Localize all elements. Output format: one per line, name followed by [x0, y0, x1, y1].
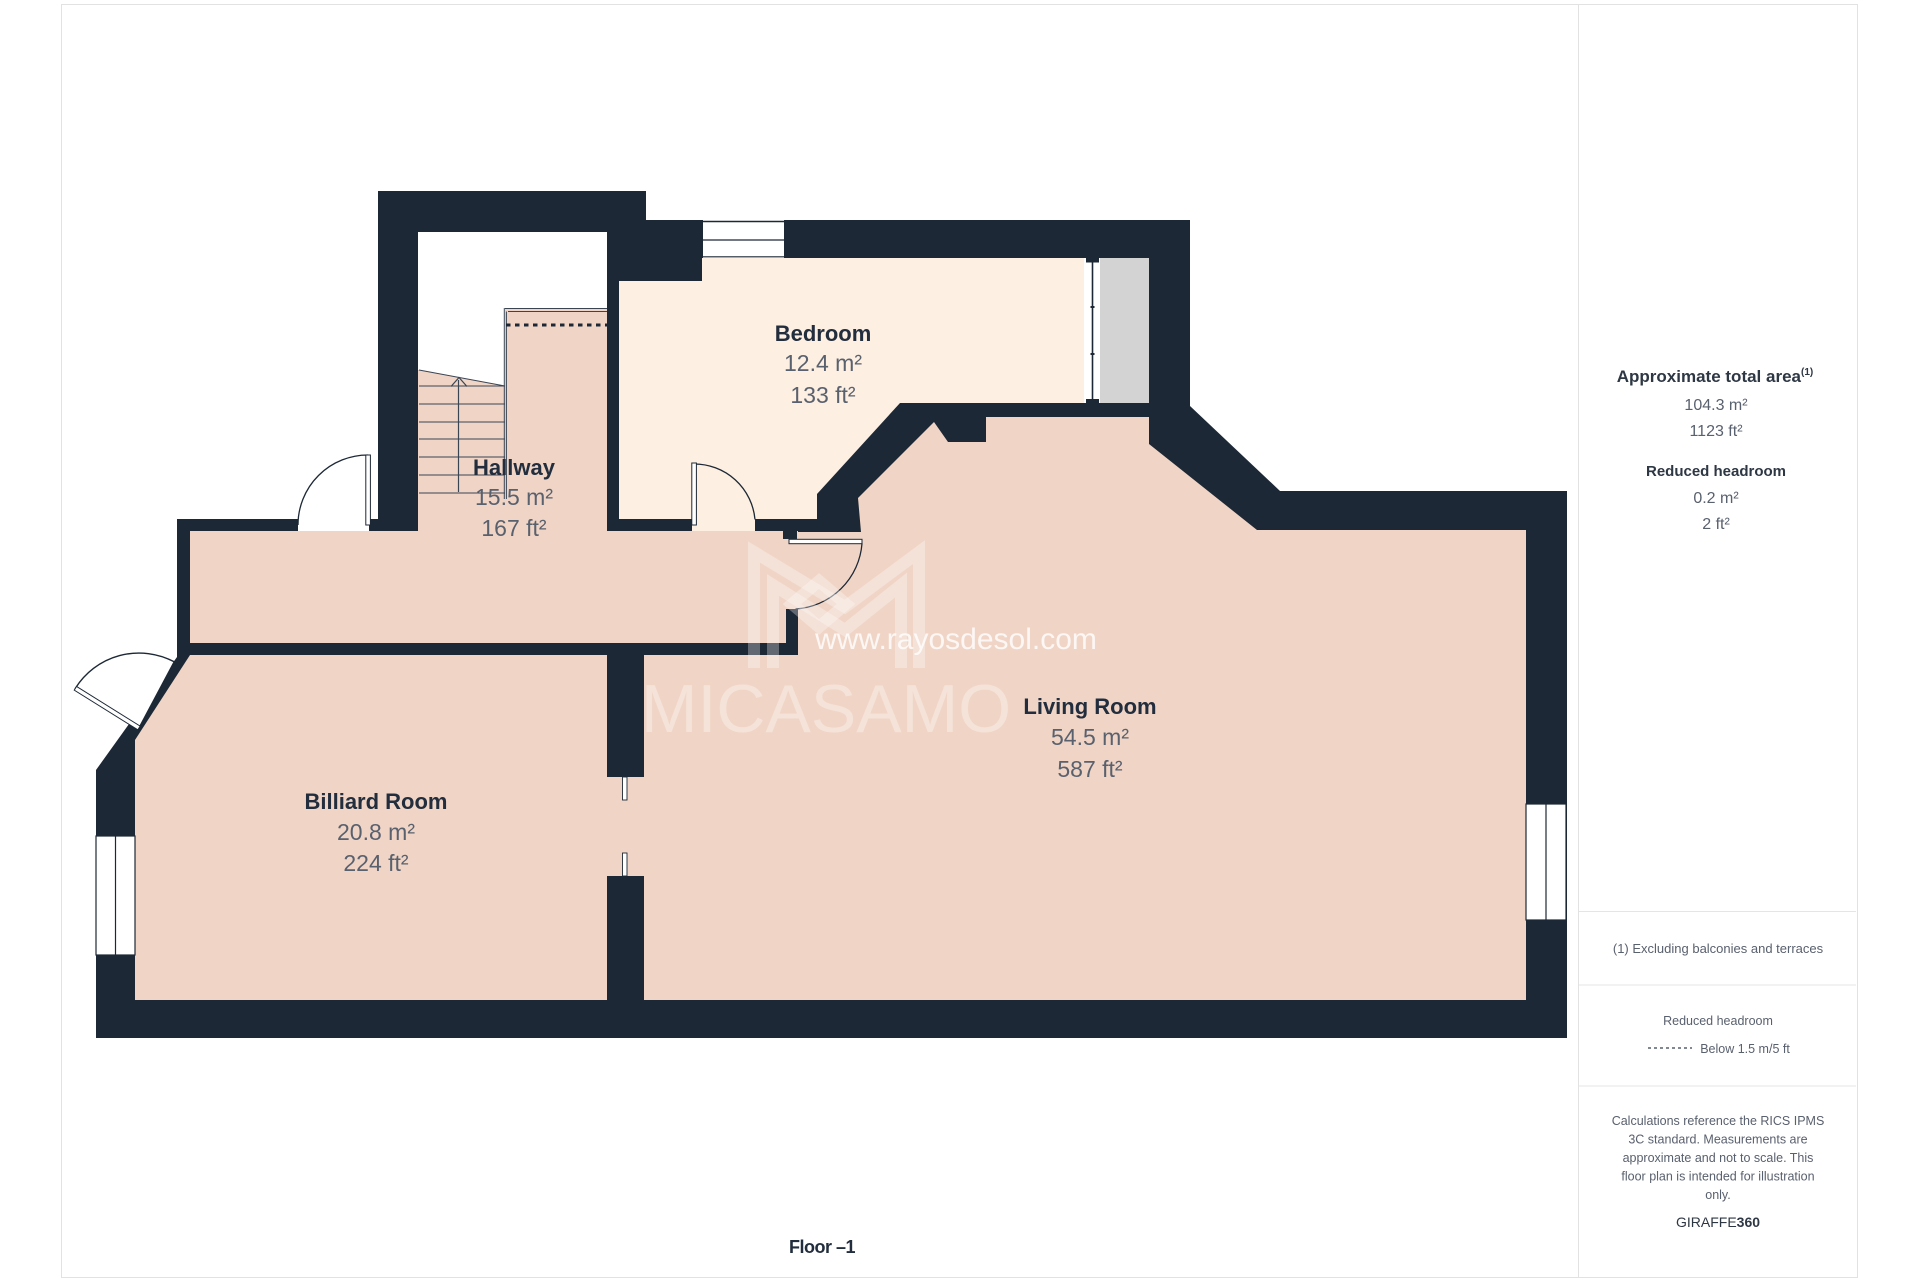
svg-text:1123 ft²: 1123 ft²: [1689, 423, 1743, 440]
svg-text:15.5 m²: 15.5 m²: [475, 484, 553, 510]
svg-text:12.4 m²: 12.4 m²: [784, 350, 862, 376]
svg-text:Below 1.5 m/5 ft: Below 1.5 m/5 ft: [1700, 1042, 1790, 1056]
svg-text:Billiard Room: Billiard Room: [304, 789, 447, 814]
svg-text:Calculations reference the RIC: Calculations reference the RICS IPMS: [1612, 1114, 1825, 1128]
svg-text:Bedroom: Bedroom: [775, 321, 872, 346]
svg-text:0.2 m²: 0.2 m²: [1693, 490, 1739, 507]
svg-text:224 ft²: 224 ft²: [343, 850, 409, 876]
svg-text:Reduced headroom: Reduced headroom: [1663, 1014, 1773, 1028]
svg-text:167 ft²: 167 ft²: [481, 515, 547, 541]
svg-text:GIRAFFE360: GIRAFFE360: [1676, 1214, 1760, 1230]
svg-text:54.5 m²: 54.5 m²: [1051, 724, 1129, 750]
svg-text:approximate and not to scale.: approximate and not to scale. This: [1623, 1151, 1814, 1165]
svg-text:(1) Excluding balconies and te: (1) Excluding balconies and terraces: [1613, 941, 1824, 956]
svg-text:Reduced headroom: Reduced headroom: [1646, 463, 1786, 480]
svg-text:MICASAMO: MICASAMO: [641, 671, 1011, 747]
svg-text:133 ft²: 133 ft²: [790, 382, 856, 408]
svg-text:floor plan is intended for ill: floor plan is intended for illustration: [1621, 1170, 1814, 1184]
svg-text:2 ft²: 2 ft²: [1702, 516, 1730, 533]
svg-text:www.rayosdesol.com: www.rayosdesol.com: [814, 623, 1097, 656]
svg-text:20.8 m²: 20.8 m²: [337, 819, 415, 845]
svg-text:only.: only.: [1705, 1188, 1730, 1202]
svg-text:Approximate total area(1): Approximate total area(1): [1617, 367, 1813, 386]
svg-text:Hallway: Hallway: [473, 455, 556, 480]
svg-text:Floor –1: Floor –1: [789, 1237, 856, 1257]
svg-text:104.3 m²: 104.3 m²: [1684, 397, 1748, 414]
svg-text:3C standard. Measurements are: 3C standard. Measurements are: [1628, 1133, 1807, 1147]
svg-text:587 ft²: 587 ft²: [1057, 756, 1123, 782]
svg-text:Living Room: Living Room: [1023, 694, 1156, 719]
